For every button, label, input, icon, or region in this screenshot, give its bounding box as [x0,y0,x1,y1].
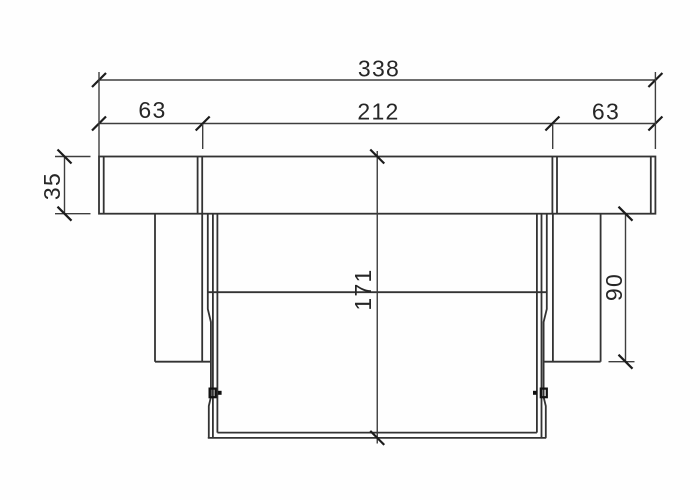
svg-text:171: 171 [350,268,376,310]
svg-text:338: 338 [358,56,400,82]
svg-text:63: 63 [592,99,620,125]
svg-text:35: 35 [39,172,65,200]
svg-text:90: 90 [601,273,627,301]
svg-text:63: 63 [138,97,166,123]
svg-text:212: 212 [357,99,399,125]
